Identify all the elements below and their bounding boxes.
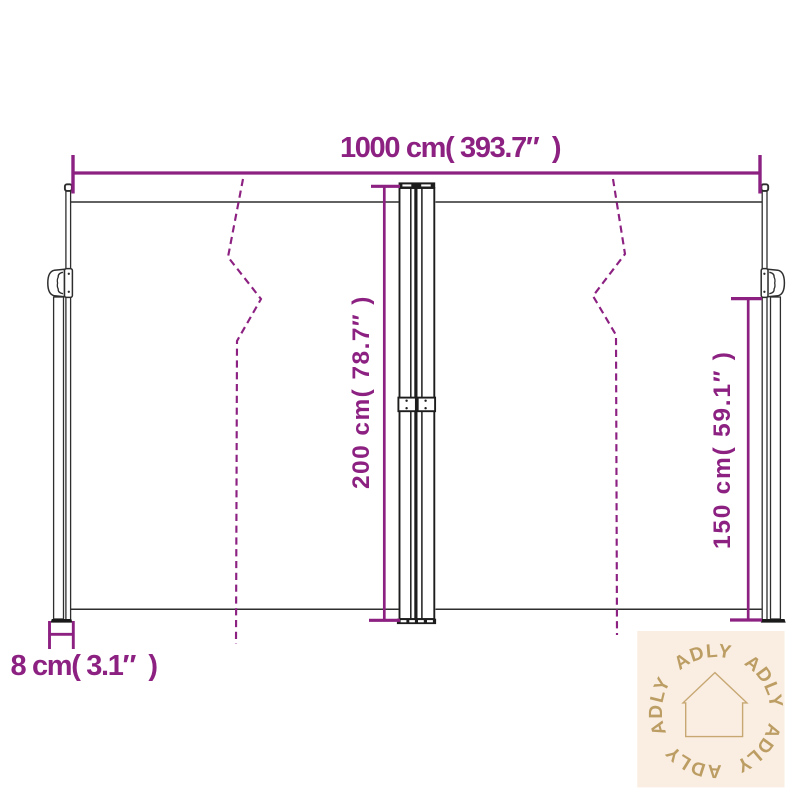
svg-text:200 cm( 78.7″ ): 200 cm( 78.7″ ) — [348, 295, 375, 489]
svg-text:150 cm( 59.1″ ): 150 cm( 59.1″ ) — [709, 350, 736, 549]
svg-text:8 cm( 3.1″ ): 8 cm( 3.1″ ) — [11, 650, 158, 682]
svg-text:1000 cm( 393.7″ ): 1000 cm( 393.7″ ) — [340, 132, 561, 164]
